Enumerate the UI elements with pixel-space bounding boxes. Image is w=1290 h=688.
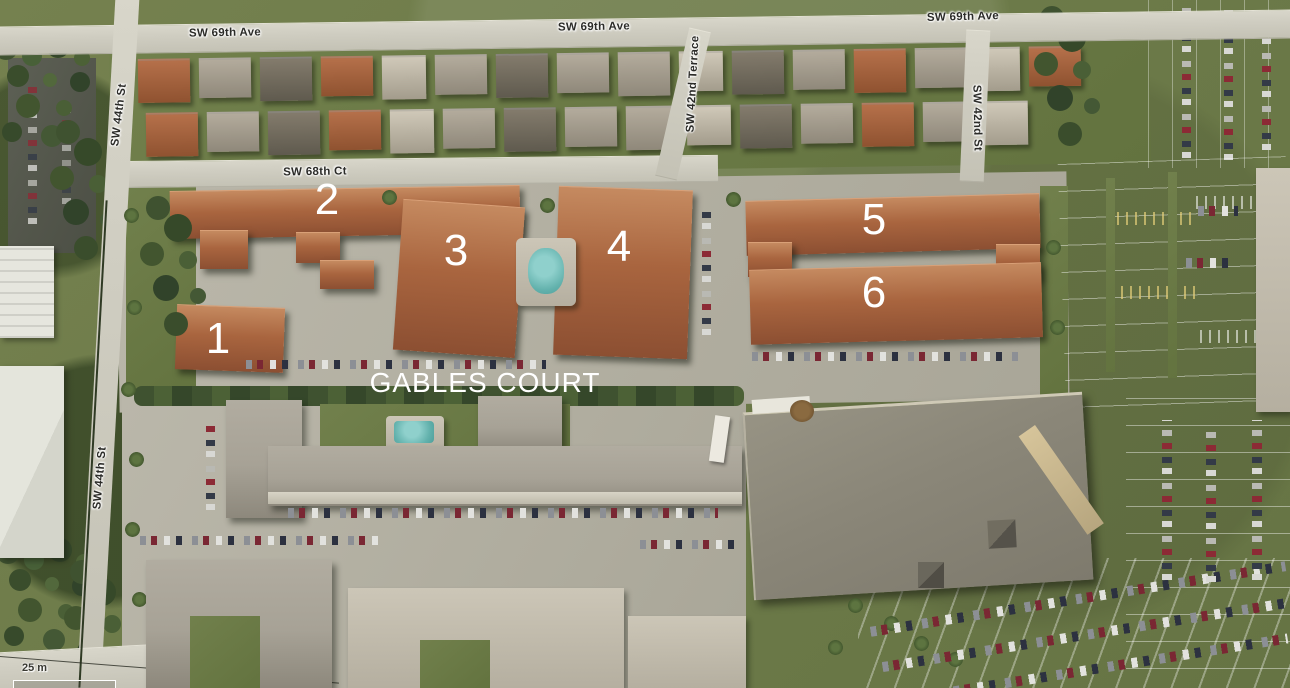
house-roof [268,110,321,155]
palm-tree [1046,240,1061,255]
house-roof [321,56,374,97]
map-canvas[interactable]: SW 69th Ave SW 69th Ave SW 69th Ave SW 6… [0,0,1290,688]
car-row [1162,420,1172,580]
house-roof [915,47,968,88]
car-row [702,205,711,335]
house-roof [146,112,199,157]
car-row [62,104,71,204]
store-entrance-tower [987,519,1016,548]
west-parking-ground [8,58,96,253]
house-roof [138,58,191,103]
car-row [28,84,37,224]
palm-tree [828,640,843,655]
street-label-sw-69th-ave-west: SW 69th Ave [189,26,261,39]
car-row [206,420,215,510]
apartment-roof-south-building [628,616,746,688]
palm-tree [848,598,863,613]
building-marker-4: 4 [607,225,631,269]
gables-building-2-wing [200,230,248,269]
tree-cluster-west [56,120,80,144]
palm-tree [121,382,136,397]
palm-tree [132,592,147,607]
building-marker-3: 3 [444,229,468,273]
car-row [1186,258,1232,268]
parking-lines [1108,212,1198,225]
street-label-sw-69th-ave-east: SW 69th Ave [927,10,999,24]
gables-clubhouse-roof [320,260,374,289]
palm-tree [726,192,741,207]
car-row [140,536,380,545]
scale-bar-rect [13,680,116,688]
house-roof [557,52,610,93]
house-roof [390,109,435,154]
car-row [1206,432,1216,582]
house-roof [207,111,260,152]
apartment-pool [394,421,434,443]
car-row [640,540,740,549]
parking-island [1168,172,1177,378]
house-roof [199,57,252,98]
house-roof [801,103,854,144]
house-roof [435,54,488,95]
palm-tree [1050,320,1065,335]
car-row [752,352,1022,361]
house-roof [793,49,846,90]
palm-tree [129,452,144,467]
house-roof [862,102,915,147]
store-entrance-tower [918,562,944,588]
house-roof [329,110,382,151]
palm-tree [127,300,142,315]
industrial-building-roof [0,246,54,338]
building-marker-5: 5 [862,198,886,242]
palm-tree [125,522,140,537]
apartment-courtyard [190,616,260,688]
industrial-building-roof [0,366,64,558]
car-row [1198,206,1238,216]
house-roof [740,104,793,149]
street-label-sw-69th-ave-center: SW 69th Ave [558,20,630,33]
parking-island [1106,178,1115,372]
house-roof [854,48,907,93]
gables-building-6-roof [749,262,1043,345]
swimming-pool [528,248,564,294]
house-roof [496,53,549,98]
apartment-courtyard [420,640,490,688]
gables-building-2-wing [296,232,340,263]
parking-lines [1112,286,1202,299]
building-marker-2: 2 [315,178,339,222]
street-label-sw-42nd-st: SW 42nd St [970,85,983,151]
building-marker-1: 1 [206,317,230,361]
house-roof [984,101,1029,146]
house-roof [504,107,557,152]
tiki-hut-roof [790,400,814,422]
car-row [1252,420,1262,580]
tree-cluster-gables-west [146,196,170,220]
car-row [288,508,718,518]
house-roof [382,55,427,100]
house-roof [1029,46,1082,87]
complex-name-label: GABLES COURT [370,367,601,399]
scale-bar-label: 25 m [22,662,47,674]
palm-tree [540,198,555,213]
house-roof [260,57,313,102]
building-marker-6: 6 [862,271,886,315]
shops-walkway-east [1256,168,1290,412]
house-roof [443,108,496,149]
palm-tree [914,636,929,651]
palm-tree [382,190,397,205]
house-roof [618,52,671,97]
house-roof [565,106,618,147]
gables-building-3-roof [393,199,525,358]
palm-tree [124,208,139,223]
apartment-facade [268,492,742,504]
house-roof [732,50,785,95]
